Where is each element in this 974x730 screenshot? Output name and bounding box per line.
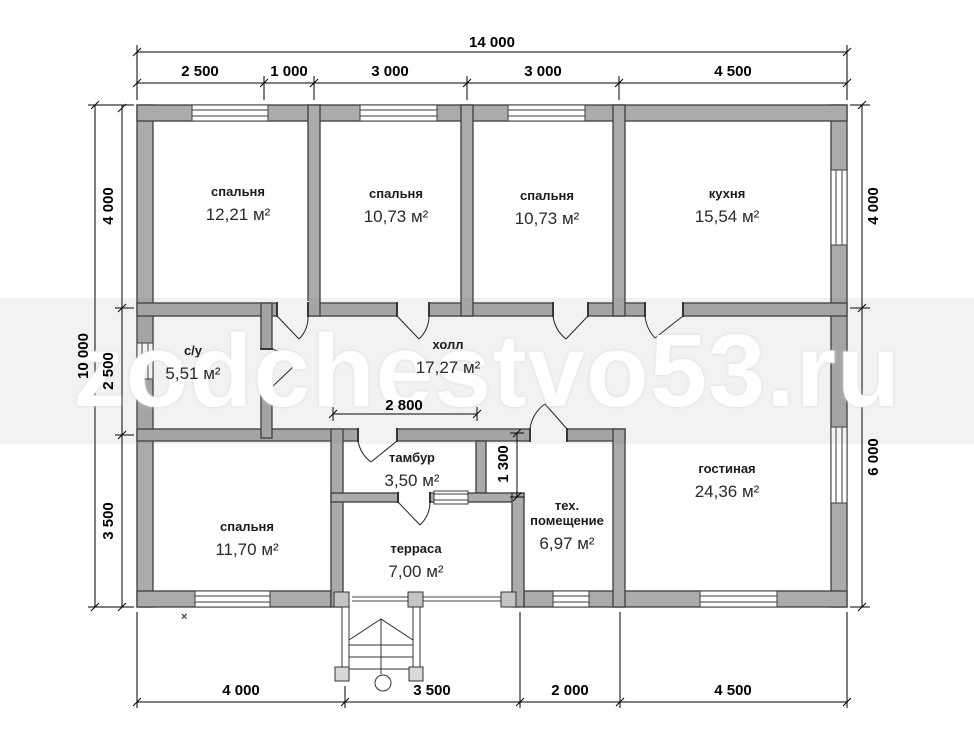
room-area: 11,70 м² — [182, 541, 312, 559]
room-name: с/у — [128, 343, 258, 358]
dim-top-seg-5: 4 500 — [693, 64, 773, 80]
dim-top-seg-1: 2 500 — [160, 64, 240, 80]
room-label-bathroom: с/у 5,51 м² — [128, 343, 258, 383]
dim-right-seg-2: 6 000 — [866, 417, 882, 497]
room-label-kitchen: кухня 15,54 м² — [662, 186, 792, 226]
room-label-bedroom-3: спальня 10,73 м² — [482, 188, 612, 228]
room-area: 24,36 м² — [662, 483, 792, 501]
room-name: холл — [383, 337, 513, 352]
dim-bottom-seg-3: 2 000 — [530, 683, 610, 699]
room-area: 6,97 м² — [517, 535, 617, 553]
room-label-living-room: гостиная 24,36 м² — [662, 461, 792, 501]
dim-left-seg-1: 4 000 — [101, 166, 117, 246]
entrance-stairs — [334, 592, 516, 691]
dim-left-total: 10 000 — [76, 316, 92, 396]
dim-top-seg-2: 1 000 — [249, 64, 329, 80]
corner-marker: × — [181, 611, 187, 623]
room-area: 5,51 м² — [128, 365, 258, 383]
dim-top-seg-3: 3 000 — [350, 64, 430, 80]
room-area: 15,54 м² — [662, 208, 792, 226]
room-label-tambour: тамбур 3,50 м² — [347, 450, 477, 490]
dim-bottom-seg-4: 4 500 — [693, 683, 773, 699]
dim-right-seg-1: 4 000 — [866, 166, 882, 246]
room-area: 12,21 м² — [173, 206, 303, 224]
room-name: спальня — [482, 188, 612, 203]
room-name: спальня — [182, 519, 312, 534]
room-label-bedroom-4: спальня 11,70 м² — [182, 519, 312, 559]
room-label-terrace: терраса 7,00 м² — [351, 541, 481, 581]
room-name: тех. помещение — [517, 498, 617, 528]
room-name: тамбур — [347, 450, 477, 465]
room-name: спальня — [331, 186, 461, 201]
dim-left-seg-3: 3 500 — [101, 481, 117, 561]
dim-top-seg-4: 3 000 — [503, 64, 583, 80]
floor-plan: zodchestvo53.ru спальня 12,21 м² спальня… — [0, 0, 974, 730]
room-label-hall: холл 17,27 м² — [383, 337, 513, 377]
dim-bottom-seg-2: 3 500 — [392, 683, 472, 699]
room-area: 10,73 м² — [482, 210, 612, 228]
terrace-railing — [352, 597, 501, 601]
room-name: спальня — [173, 184, 303, 199]
dim-bottom-seg-1: 4 000 — [201, 683, 281, 699]
room-area: 17,27 м² — [383, 359, 513, 377]
room-area: 3,50 м² — [347, 472, 477, 490]
dim-tambour-width: 2 800 — [364, 398, 444, 414]
room-name: терраса — [351, 541, 481, 556]
room-label-bedroom-2: спальня 10,73 м² — [331, 186, 461, 226]
room-name: кухня — [662, 186, 792, 201]
room-area: 10,73 м² — [331, 208, 461, 226]
dim-top-total: 14 000 — [452, 35, 532, 51]
room-area: 7,00 м² — [351, 563, 481, 581]
dim-passage-depth: 1 300 — [496, 424, 512, 504]
dim-left-seg-2: 2 500 — [101, 331, 117, 411]
room-label-bedroom-1: спальня 12,21 м² — [173, 184, 303, 224]
room-name: гостиная — [662, 461, 792, 476]
room-label-tech-room: тех. помещение 6,97 м² — [517, 498, 617, 553]
